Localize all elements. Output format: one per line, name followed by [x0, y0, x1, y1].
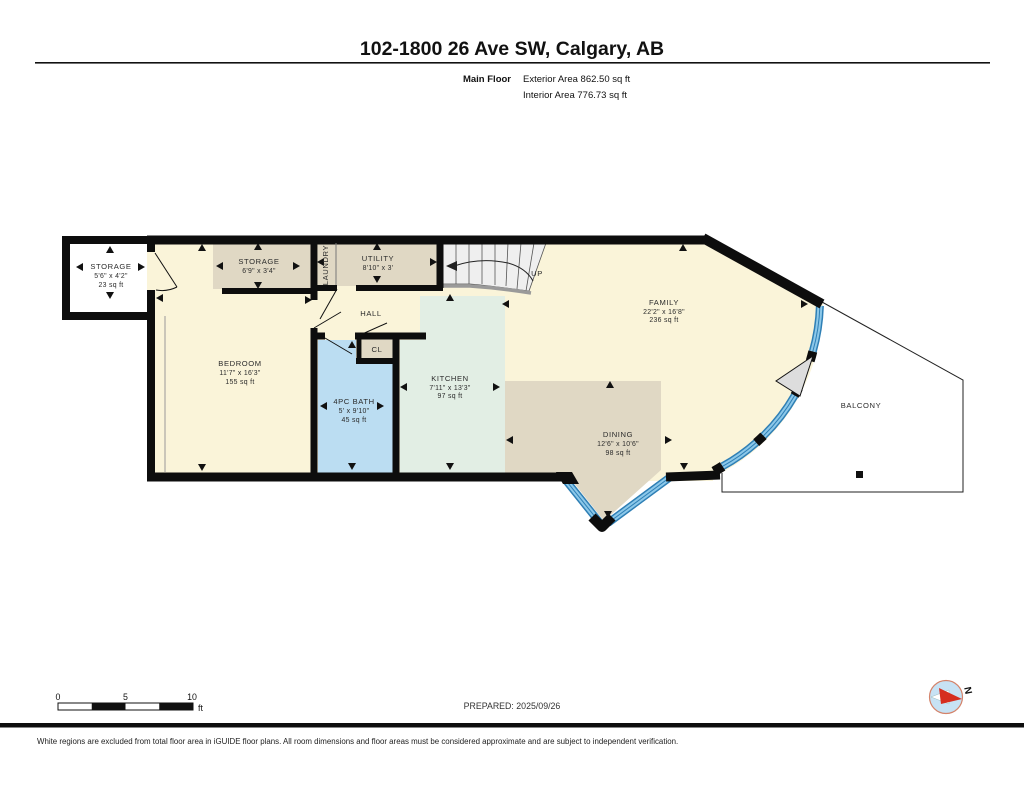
label-dining-name: DINING — [603, 430, 633, 439]
wall-curve-seg-3 — [756, 436, 763, 443]
wall-bay-cap-tip — [592, 517, 612, 527]
interior-area-label: Interior Area 776.73 sq ft — [523, 90, 627, 101]
label-bath-dims: 5' x 9'10" — [339, 408, 370, 415]
floor-label: Main Floor — [463, 74, 511, 85]
wall-bottom-right — [666, 475, 720, 477]
footer-disclaimer: White regions are excluded from total fl… — [37, 737, 678, 746]
label-family-area: 236 sq ft — [649, 317, 678, 324]
scale-bar: 0 5 10 ft — [56, 692, 204, 713]
label-family-dims: 22'2" x 16'8" — [643, 309, 685, 316]
label-storage-annex-area: 23 sq ft — [99, 282, 124, 289]
label-utility-dims: 8'10" x 3' — [363, 265, 394, 272]
label-utility-name: UTILITY — [362, 254, 394, 263]
label-bedroom-dims: 11'7" x 16'3" — [219, 370, 260, 377]
scale-bar-cell-dark-1 — [92, 703, 126, 710]
label-storage-name: STORAGE — [238, 257, 279, 266]
label-family-name: FAMILY — [649, 298, 679, 307]
label-storage-annex-name: STORAGE — [90, 262, 131, 271]
label-closet: CL — [372, 345, 383, 354]
label-storage-annex-dims: 5'6" x 4'2" — [94, 273, 128, 280]
balcony-post — [856, 471, 863, 478]
scale-tick-5: 5 — [123, 692, 128, 702]
room-label-balcony: BALCONY — [841, 401, 882, 410]
label-bedroom-name: BEDROOM — [218, 359, 261, 368]
label-storage-dims: 6'9" x 3'4" — [242, 268, 276, 275]
label-kitchen-name: KITCHEN — [431, 374, 469, 383]
floor-plan-canvas: 102-1800 26 Ave SW, Calgary, AB Main Flo… — [0, 0, 1024, 791]
prepared-label: PREPARED: 2025/09/26 — [464, 701, 561, 711]
exterior-area-label: Exterior Area 862.50 sq ft — [523, 74, 631, 85]
label-laundry: LAUNDRY — [321, 245, 330, 285]
scale-tick-0: 0 — [56, 692, 61, 702]
label-kitchen-area: 97 sq ft — [438, 393, 463, 400]
compass: N — [930, 681, 974, 714]
page-title: 102-1800 26 Ave SW, Calgary, AB — [360, 38, 664, 60]
compass-north-label: N — [961, 686, 973, 695]
scale-unit: ft — [198, 703, 203, 713]
footer-divider — [0, 723, 1024, 728]
stairs-body — [443, 243, 546, 291]
scale-tick-10: 10 — [187, 692, 197, 702]
label-bath-name: 4PC BATH — [333, 397, 374, 406]
header-divider — [35, 62, 990, 64]
label-bedroom-area: 155 sq ft — [225, 379, 254, 386]
label-dining-dims: 12'6" x 10'6" — [597, 441, 639, 448]
stairs: UP — [443, 243, 546, 293]
label-kitchen-dims: 7'11" x 13'3" — [429, 385, 470, 392]
wall-curve-corner — [714, 466, 723, 471]
scale-bar-cell-dark-2 — [159, 703, 193, 710]
floor-plan-page: 102-1800 26 Ave SW, Calgary, AB Main Flo… — [0, 0, 1024, 791]
label-bath-area: 45 sq ft — [342, 417, 367, 424]
label-hall: HALL — [360, 309, 381, 318]
stairs-up-label: UP — [531, 269, 543, 278]
label-dining-area: 98 sq ft — [606, 450, 631, 457]
